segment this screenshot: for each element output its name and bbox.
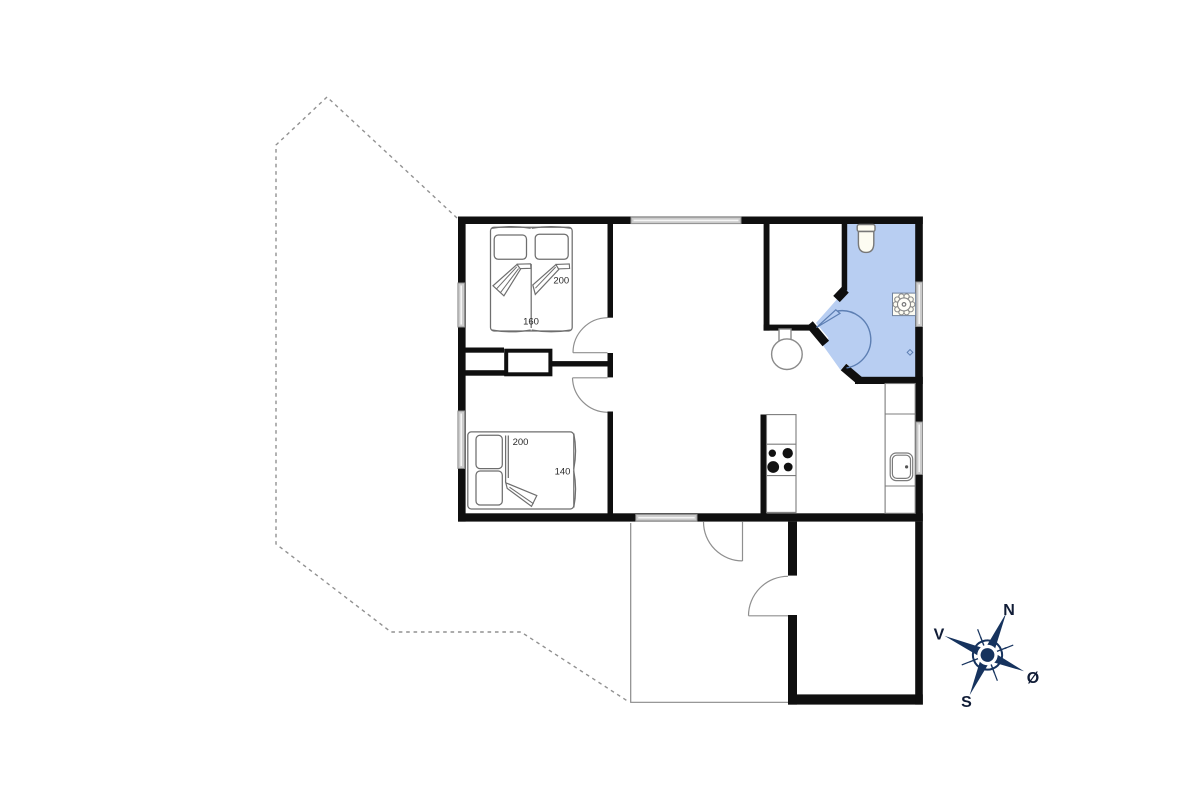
svg-text:140: 140 — [555, 466, 571, 477]
svg-text:Ø: Ø — [1027, 670, 1039, 687]
svg-text:200: 200 — [513, 437, 529, 448]
svg-text:N: N — [1003, 602, 1015, 619]
svg-text:200: 200 — [553, 276, 569, 287]
svg-text:V: V — [934, 627, 945, 644]
svg-text:S: S — [961, 694, 972, 711]
svg-text:160: 160 — [523, 317, 539, 328]
